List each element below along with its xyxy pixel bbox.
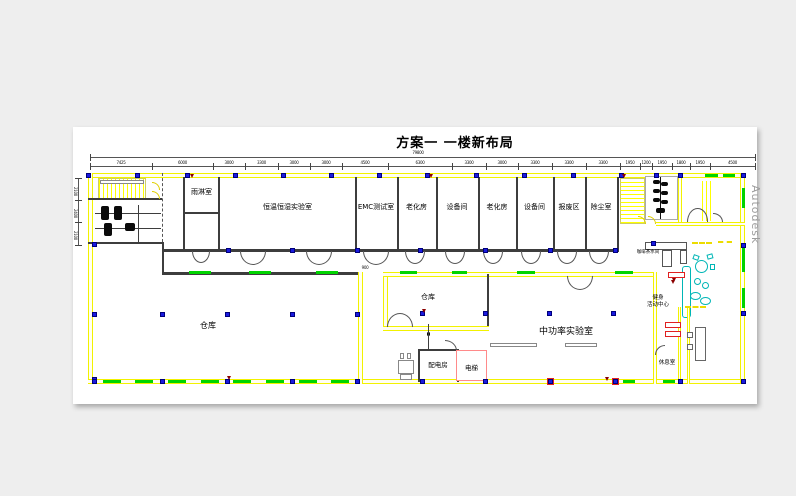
opening-dashed <box>718 241 732 243</box>
column-marker <box>329 173 334 178</box>
dimension-label: 2100 <box>73 182 77 200</box>
wall-stub <box>428 324 429 349</box>
window-segment <box>201 380 219 383</box>
lab-bench <box>490 343 537 347</box>
dimension-line-left <box>78 178 79 245</box>
wall-block-bottom <box>88 242 164 244</box>
chair <box>702 282 709 289</box>
column-marker <box>355 379 360 384</box>
column-marker <box>483 379 488 384</box>
red-marker <box>190 174 194 178</box>
toilet-fixture <box>661 182 668 186</box>
room-label-aging-2: 老化房 <box>478 203 516 211</box>
wall-partition <box>436 177 438 250</box>
column-marker <box>226 248 231 253</box>
dimension-label: 1800 <box>673 161 689 165</box>
dimension-label: 3300 <box>595 161 611 165</box>
column-marker <box>92 242 97 247</box>
column-marker <box>135 173 140 178</box>
chair <box>706 253 713 259</box>
red-marker <box>429 174 433 178</box>
column-marker <box>225 312 230 317</box>
coffee-counter-leg <box>662 250 672 267</box>
dimension-tick <box>90 163 91 170</box>
wall-bottom <box>88 379 745 384</box>
dimension-tick <box>755 163 756 170</box>
window-segment <box>723 174 735 177</box>
chair <box>710 264 715 270</box>
window-segment <box>249 271 271 274</box>
room-label-warehouse-small: 仓库 <box>413 293 443 301</box>
opening-dashed <box>692 242 712 244</box>
wall-wc-top <box>88 198 162 200</box>
dimension-tick <box>245 163 246 170</box>
dimension-label: 7425 <box>113 161 129 165</box>
floor-plan: 79800 900 雨淋室 <box>73 127 757 404</box>
dimension-label: 3300 <box>561 161 577 165</box>
water-heater-base <box>400 374 412 380</box>
window-segment <box>742 288 745 308</box>
dimension-tick <box>75 222 82 223</box>
dimension-label: 4500 <box>725 161 741 165</box>
double-door <box>240 251 266 265</box>
toilet-fixture <box>114 206 122 220</box>
dimension-tick <box>278 163 279 170</box>
column-marker <box>741 173 746 178</box>
dimension-label: 3000 <box>286 161 302 165</box>
double-door <box>306 251 332 265</box>
window-segment <box>663 380 675 383</box>
room-label-midpower-lab: 中功率实验室 <box>525 328 607 336</box>
column-marker <box>483 248 488 253</box>
wall-warehouse-right <box>358 272 363 384</box>
door-arc-rightroom <box>713 213 723 222</box>
room-label-lounge: 休息室 <box>655 359 679 367</box>
dimension-tick <box>552 163 553 170</box>
toilet-fixture <box>661 191 668 195</box>
column-marker <box>418 248 423 253</box>
dimension-tick <box>75 245 82 246</box>
column-marker <box>678 173 683 178</box>
dimension-tick <box>620 163 621 170</box>
dimension-label: 1950 <box>622 161 638 165</box>
dimension-label: 2100 <box>73 226 77 244</box>
double-door-midpower <box>567 276 593 290</box>
red-marker <box>422 309 426 313</box>
dimension-label: 4500 <box>357 161 373 165</box>
water-heater <box>400 353 404 359</box>
drawing-page: 方案一 一楼新布局 Autodesk 79800 900 <box>73 127 757 404</box>
dimension-label: 1950 <box>654 161 670 165</box>
window-segment <box>623 380 635 383</box>
dimension-tick <box>90 154 91 161</box>
room-label-power: 配电房 <box>418 361 458 369</box>
dimension-tick <box>388 163 389 170</box>
window-segment <box>266 380 284 383</box>
wall-partition <box>553 177 555 250</box>
dimension-tick <box>518 163 519 170</box>
column-marker <box>290 248 295 253</box>
room-label-warehouse-main: 仓库 <box>188 322 228 330</box>
wall-partition <box>617 177 619 250</box>
window-segment <box>400 271 417 274</box>
column-marker <box>160 312 165 317</box>
window-segment <box>452 271 467 274</box>
red-marker <box>227 376 231 380</box>
column-marker <box>92 312 97 317</box>
equipment-box <box>665 322 681 328</box>
wall-dashed <box>162 173 163 242</box>
red-marker <box>672 278 676 282</box>
red-marker <box>622 174 626 178</box>
chair <box>694 278 701 285</box>
toilet-fixture <box>653 198 660 202</box>
dimension-tick <box>310 163 311 170</box>
wall-left <box>88 173 93 384</box>
window-segment <box>316 271 338 274</box>
wall-wc-divider <box>138 205 139 242</box>
toilet-fixture <box>653 189 660 193</box>
double-door-small-warehouse <box>387 313 413 327</box>
window-segment <box>517 271 535 274</box>
dimension-tick <box>586 163 587 170</box>
wall-lobby-left <box>653 272 657 384</box>
dimension-tick <box>75 200 82 201</box>
column-marker-red <box>613 379 618 384</box>
wall-rightroom-bottom <box>656 222 745 226</box>
column-marker <box>160 379 165 384</box>
double-door <box>192 251 210 263</box>
dimension-label: 6000 <box>175 161 191 165</box>
opening-dashed <box>685 306 706 308</box>
door-arc-stair <box>152 191 160 199</box>
coffee-machine <box>668 272 685 278</box>
desk-chair <box>687 332 693 338</box>
dimension-label: 3300 <box>461 161 477 165</box>
dimension-tick <box>486 163 487 170</box>
column-marker <box>571 173 576 178</box>
window-segment <box>189 271 211 274</box>
column-marker <box>741 379 746 384</box>
window-segment <box>742 188 745 208</box>
double-door-rightroom <box>687 208 708 222</box>
column-marker <box>92 379 97 384</box>
dimension-tick <box>690 163 691 170</box>
window-segment <box>103 380 121 383</box>
column-marker <box>654 173 659 178</box>
dimension-line-total <box>90 157 755 158</box>
room-label-rain: 雨淋室 <box>183 188 220 196</box>
toilet-fixture <box>653 180 660 184</box>
water-heater-body <box>398 360 414 374</box>
column-marker <box>651 241 656 246</box>
window-segment <box>168 380 186 383</box>
column-marker-red <box>548 379 553 384</box>
dimension-label: 1200 <box>638 161 654 165</box>
wall-lobby-link <box>630 272 655 277</box>
column-marker <box>290 379 295 384</box>
dimension-tick <box>755 154 756 161</box>
double-door <box>589 251 609 264</box>
room-label-scrap: 报废区 <box>553 203 585 211</box>
column-marker <box>547 311 552 316</box>
wall-partition <box>355 177 357 250</box>
room-label-climate-lab: 恒温恒湿实验室 <box>220 203 355 211</box>
wall-partition <box>478 177 480 250</box>
wall-wc-right <box>678 173 682 226</box>
column-marker <box>522 173 527 178</box>
autodesk-watermark: Autodesk <box>749 185 762 244</box>
room-label-fitness: 健身 活动中心 <box>644 295 672 308</box>
room-label-coffee: 咖啡茶水间 <box>633 250 663 255</box>
column-marker <box>474 173 479 178</box>
column-marker <box>355 312 360 317</box>
column-marker <box>678 379 683 384</box>
toilet-fixture <box>656 208 665 213</box>
fitness-line2: 活动中心 <box>644 302 672 309</box>
desk-chair <box>687 344 693 350</box>
equipment-box <box>665 331 681 337</box>
wall-small-warehouse-right <box>487 274 489 329</box>
window-segment <box>299 380 317 383</box>
dimension-tick <box>452 163 453 170</box>
dimension-label: 3300 <box>254 161 270 165</box>
dimension-line-segments <box>90 166 755 167</box>
wall-fitness-right <box>678 307 681 384</box>
column-marker <box>741 243 746 248</box>
toilet-fixture <box>125 223 135 231</box>
toilet-fixture <box>104 223 112 236</box>
window-segment <box>331 380 349 383</box>
window-segment <box>135 380 153 383</box>
column-marker <box>355 248 360 253</box>
toilet-fixture <box>661 200 668 204</box>
column-marker <box>233 173 238 178</box>
column-marker <box>86 173 91 178</box>
double-door <box>363 251 389 265</box>
dimension-tick <box>342 163 343 170</box>
column-marker <box>483 311 488 316</box>
window-segment <box>705 174 718 177</box>
room-label-elevator: 电梯 <box>456 364 487 372</box>
column-marker <box>611 311 616 316</box>
window-segment <box>233 380 251 383</box>
column-marker <box>290 312 295 317</box>
room-label-equipment-1: 设备间 <box>436 203 478 211</box>
dimension-tick <box>710 163 711 170</box>
column-marker <box>420 379 425 384</box>
double-door <box>445 251 465 264</box>
wall-partition <box>585 177 587 250</box>
lab-bench <box>565 343 597 347</box>
round-table <box>695 260 708 273</box>
wall-partition <box>516 177 518 250</box>
desktop-background: { "title": "方案一 一楼新布局", "watermark": "Au… <box>0 0 796 496</box>
column-marker <box>377 173 382 178</box>
toilet-fixture <box>101 206 109 220</box>
door-arc-stair <box>152 182 160 190</box>
coffee-counter-leg <box>680 250 687 264</box>
dimension-label: 3300 <box>527 161 543 165</box>
wall-partition <box>397 177 399 250</box>
double-door <box>521 251 541 264</box>
column-marker <box>613 248 618 253</box>
dimension-tick <box>213 163 214 170</box>
room-label-emc: EMC测试室 <box>355 203 397 211</box>
window-segment <box>615 271 633 274</box>
dimension-label: 3000 <box>221 161 237 165</box>
red-marker <box>605 377 609 381</box>
chair <box>700 297 711 305</box>
desk <box>695 327 706 361</box>
column-marker <box>548 248 553 253</box>
dimension-label: 2400 <box>73 204 77 222</box>
room-label-aging-1: 老化房 <box>397 203 436 211</box>
dimension-tick <box>75 178 82 179</box>
double-door <box>557 251 577 264</box>
dimension-label: 6300 <box>412 161 428 165</box>
wall-rain-divider <box>183 212 220 214</box>
dimension-label-total: 79800 <box>408 151 428 155</box>
dimension-label-corridor: 900 <box>359 266 371 270</box>
wall-corner <box>162 242 164 273</box>
dimension-label: 1950 <box>692 161 708 165</box>
column-marker <box>741 311 746 316</box>
dimension-label: 3000 <box>494 161 510 165</box>
dimension-label: 3000 <box>318 161 334 165</box>
dimension-tick <box>152 163 153 170</box>
room-label-dust: 除尘室 <box>585 203 617 211</box>
stair-landing <box>100 180 144 184</box>
column-marker <box>281 173 286 178</box>
room-label-equipment-2: 设备间 <box>516 203 553 211</box>
water-heater <box>407 353 411 359</box>
